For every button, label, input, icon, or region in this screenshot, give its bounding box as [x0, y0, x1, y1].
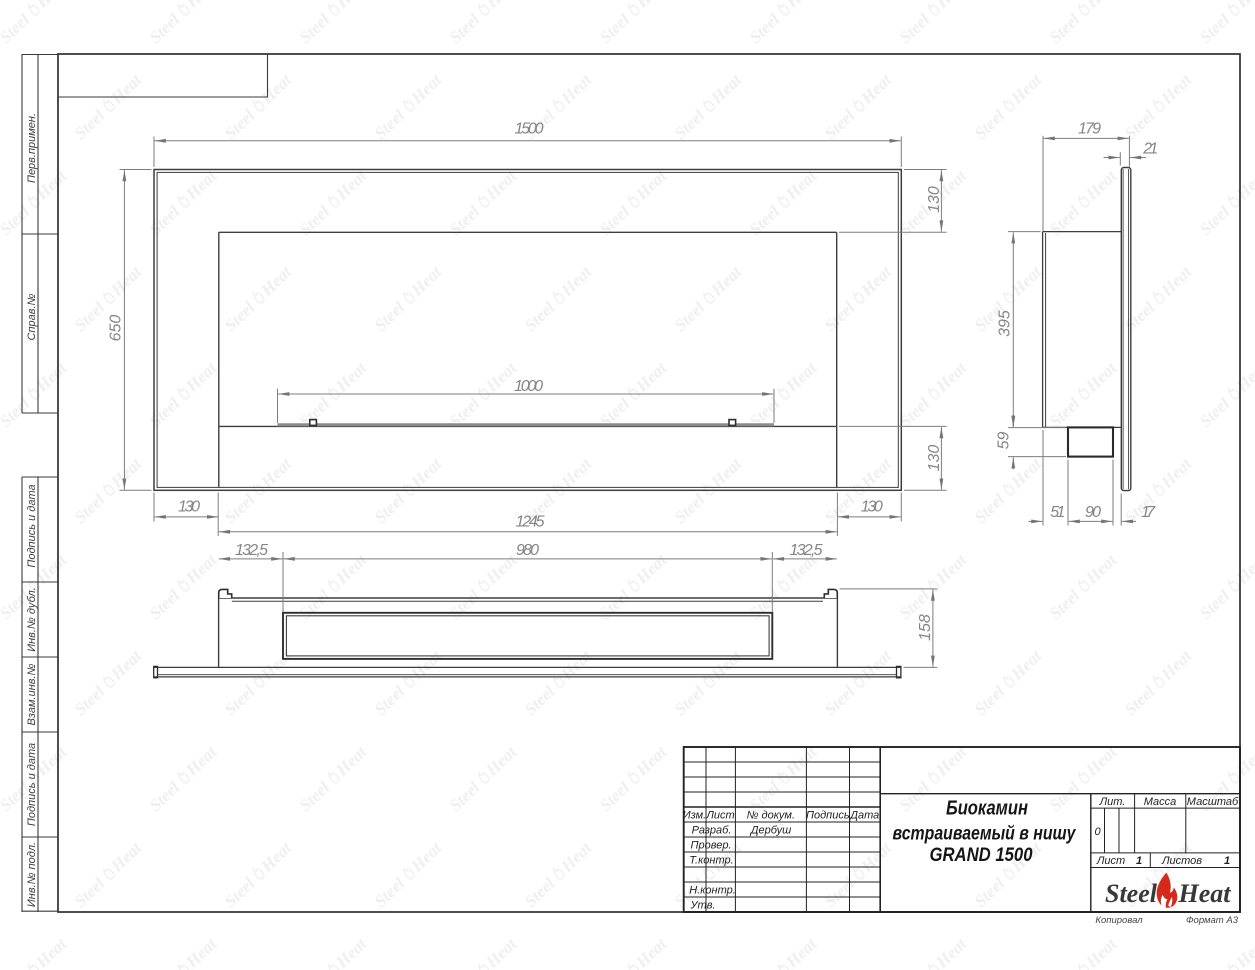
svg-text:Справ.№: Справ.№	[26, 293, 38, 340]
svg-text:Инв.№ подл.: Инв.№ подл.	[26, 842, 38, 907]
svg-text:21: 21	[1142, 140, 1158, 157]
svg-text:Heat: Heat	[1178, 879, 1232, 908]
svg-text:1500: 1500	[515, 121, 544, 138]
svg-text:650: 650	[108, 315, 125, 342]
svg-text:1: 1	[1136, 855, 1142, 867]
svg-text:Лист: Лист	[1096, 855, 1125, 867]
svg-text:17: 17	[1141, 504, 1156, 521]
svg-text:51: 51	[1050, 504, 1065, 521]
svg-text:130: 130	[926, 186, 943, 213]
svg-text:980: 980	[516, 542, 539, 559]
svg-text:132,5: 132,5	[235, 542, 268, 559]
svg-text:90: 90	[1085, 504, 1101, 521]
svg-text:Провер.: Провер.	[691, 840, 732, 852]
svg-text:Лист: Лист	[705, 810, 734, 822]
svg-text:132,5: 132,5	[790, 542, 823, 559]
svg-text:158: 158	[917, 614, 934, 641]
svg-text:GRAND 1500: GRAND 1500	[930, 844, 1033, 866]
svg-text:130: 130	[926, 445, 943, 472]
svg-text:0: 0	[1095, 826, 1102, 838]
svg-text:встраиваемый в нишу: встраиваемый в нишу	[893, 823, 1077, 845]
svg-text:1245: 1245	[516, 514, 545, 531]
svg-text:Листов: Листов	[1161, 855, 1202, 867]
svg-text:Изм.: Изм.	[683, 810, 706, 822]
svg-text:Инв.№ дубл.: Инв.№ дубл.	[26, 587, 38, 652]
svg-text:Утв.: Утв.	[690, 900, 716, 912]
svg-text:Масштаб: Масштаб	[1187, 796, 1239, 808]
svg-text:Масса: Масса	[1144, 796, 1177, 808]
svg-text:130: 130	[861, 499, 883, 516]
svg-text:1: 1	[1224, 855, 1230, 867]
svg-text:№ докум.: № докум.	[747, 810, 795, 822]
svg-text:Подпись: Подпись	[806, 810, 850, 822]
svg-text:Дербуш: Дербуш	[749, 825, 792, 837]
svg-text:Дата: Дата	[848, 810, 879, 822]
svg-text:Взам.инв.№: Взам.инв.№	[26, 663, 38, 725]
svg-text:Подпись и дата: Подпись и дата	[26, 743, 38, 826]
svg-text:Биокамин: Биокамин	[946, 798, 1028, 820]
svg-text:Копировал: Копировал	[1095, 915, 1143, 926]
svg-text:130: 130	[178, 499, 200, 516]
svg-text:395: 395	[996, 310, 1013, 337]
svg-text:Н.контр.: Н.контр.	[689, 885, 736, 897]
svg-text:59: 59	[996, 432, 1013, 450]
svg-text:Формат А3: Формат А3	[1186, 915, 1239, 926]
svg-text:Разраб.: Разраб.	[692, 825, 732, 837]
svg-text:Подпись и дата: Подпись и дата	[26, 484, 38, 567]
svg-text:Steel: Steel	[1105, 879, 1158, 908]
svg-text:1000: 1000	[514, 378, 543, 395]
svg-text:Перв.примен.: Перв.примен.	[26, 113, 38, 183]
svg-text:Т.контр.: Т.контр.	[689, 855, 733, 867]
svg-text:179: 179	[1078, 120, 1101, 137]
svg-text:Лит.: Лит.	[1099, 796, 1126, 808]
